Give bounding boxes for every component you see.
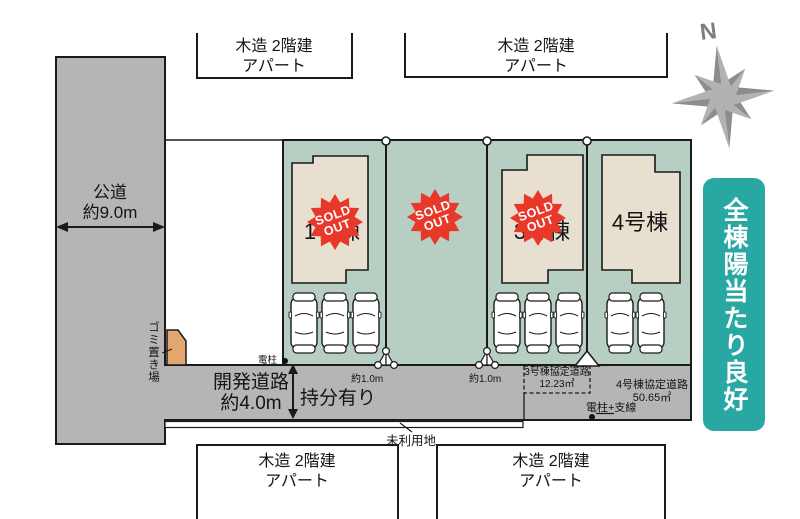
site-plan: N 木造 2階建 アパート 木造 2階建 アパート 木造 2階建 アパート 木造… — [0, 0, 800, 519]
neighbor-apartment-bottom-right: 木造 2階建 アパート — [512, 452, 589, 493]
agreement-road-3-label: 3号棟協定道路 12.23㎡ — [524, 367, 590, 390]
neighbor-apartment-bottom-left: 木造 2階建 アパート — [258, 452, 335, 493]
offset-right-label: 約1.0m — [469, 370, 501, 385]
garbage-area-shape — [167, 330, 186, 365]
offset-left-label: 約1.0m — [351, 370, 383, 385]
utility-pole-label: 電柱 — [258, 352, 277, 366]
agreement-road-4-label: 4号棟協定道路 50.65㎡ — [616, 379, 688, 404]
lot-4-label: 4号棟 — [612, 205, 668, 237]
compass-icon — [665, 39, 781, 155]
neighbor-apartment-top-left: 木造 2階建 アパート — [235, 37, 312, 78]
sunlight-banner-text: 全棟陽当たり良好 — [716, 197, 752, 413]
garbage-area-label: ゴミ置き場 — [145, 321, 161, 387]
unused-land-strip — [165, 422, 523, 428]
utility-pole-wire-dot — [589, 414, 595, 420]
utility-pole-wire-label: 電柱+支線 — [586, 402, 636, 415]
sunlight-banner: 全棟陽当たり良好 — [703, 178, 765, 431]
compass-north-label: N — [698, 17, 718, 46]
utility-pole-dot — [282, 358, 288, 364]
neighbor-apartment-top-right: 木造 2階建 アパート — [497, 37, 574, 78]
ownership-note: 持分有り — [300, 383, 376, 410]
public-road-label: 公道 約9.0m — [83, 183, 138, 222]
unused-land-label: 未利用地 — [386, 430, 436, 449]
dev-road-label: 開発道路 約4.0m — [213, 373, 289, 414]
